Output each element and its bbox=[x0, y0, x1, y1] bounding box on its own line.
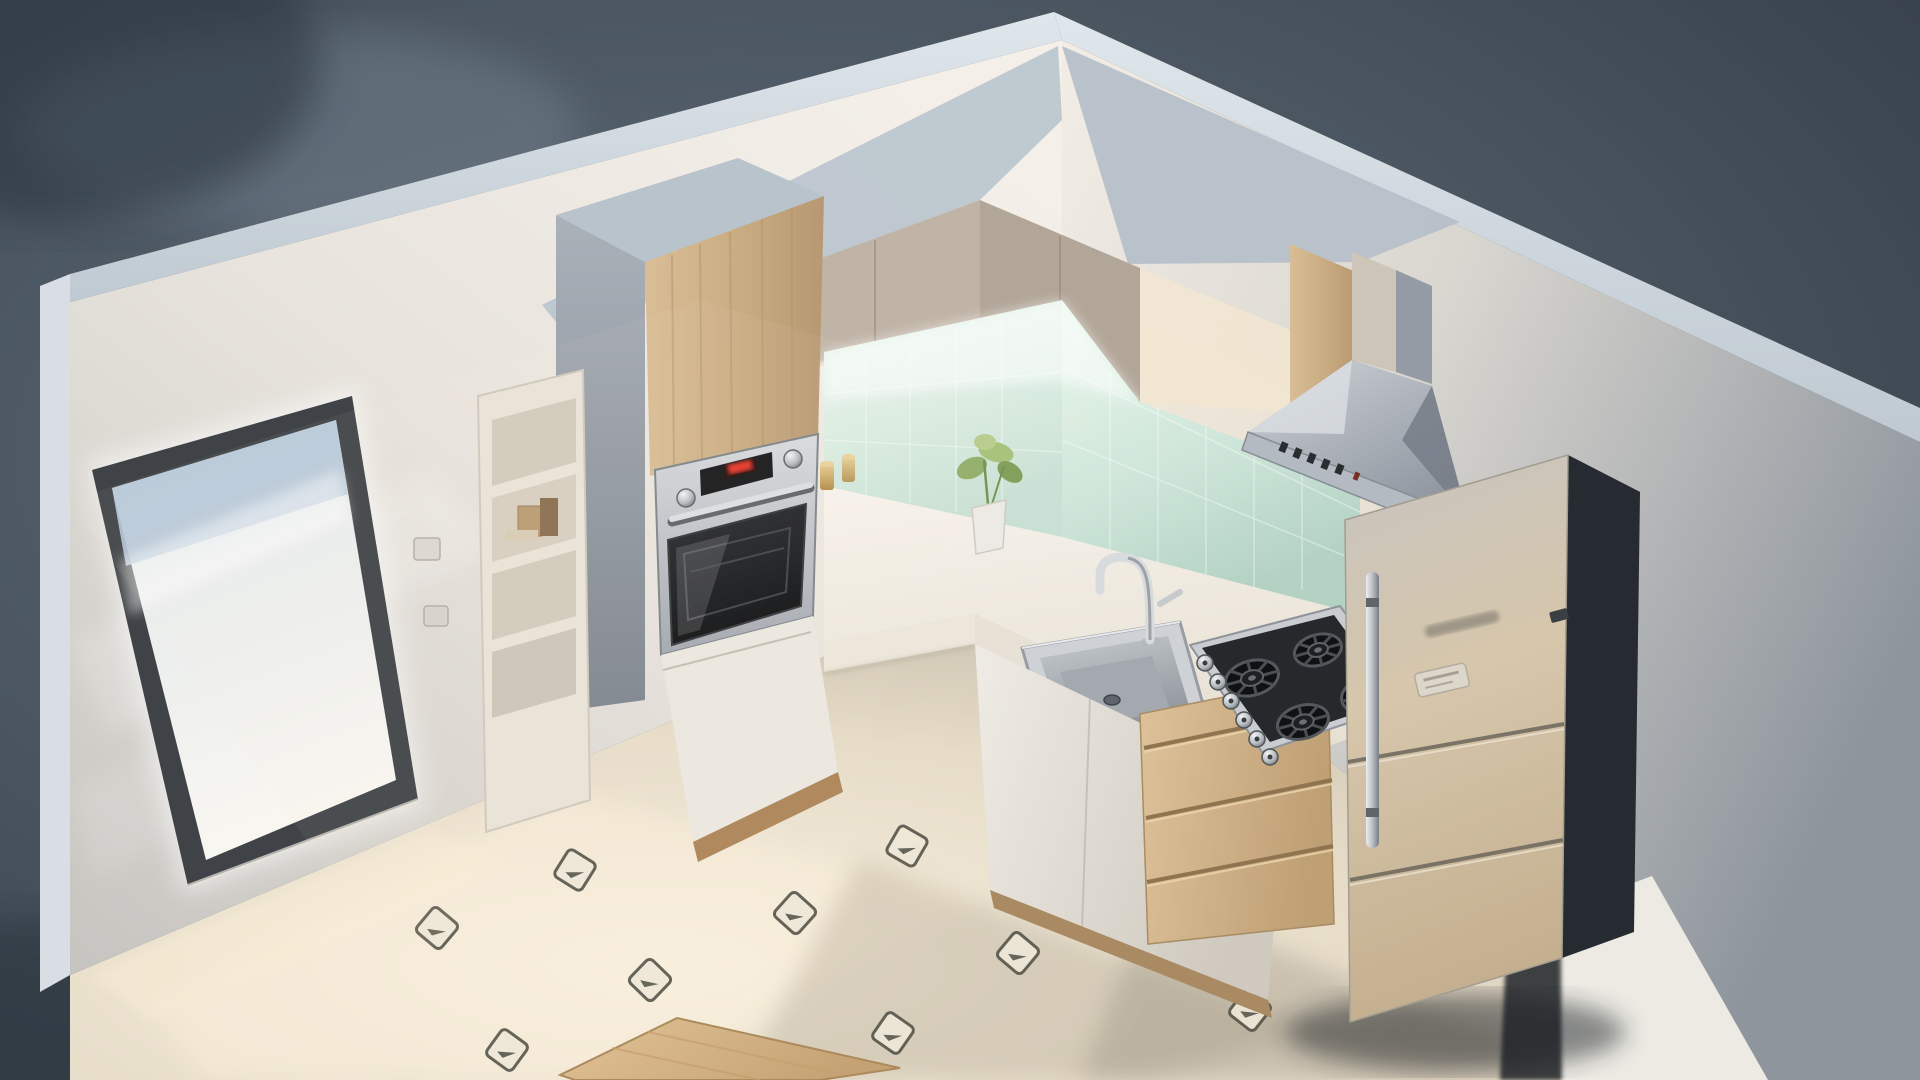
fridge-handle-mount-top bbox=[1366, 598, 1379, 607]
left-wall-endcap bbox=[40, 274, 70, 992]
cooktop-knob[interactable] bbox=[1223, 693, 1239, 709]
fridge-handle[interactable] bbox=[1366, 572, 1379, 848]
cooktop-knob[interactable] bbox=[1249, 731, 1265, 747]
fridge-handle-mount-bottom bbox=[1366, 808, 1379, 817]
fridge-floor-shadow bbox=[1285, 994, 1625, 1070]
scene-canvas bbox=[0, 0, 1920, 1080]
fridge-side bbox=[1562, 455, 1640, 958]
cooktop-knob[interactable] bbox=[1210, 674, 1226, 690]
cooktop-knob[interactable] bbox=[1262, 749, 1278, 765]
hood-duct-right bbox=[1396, 270, 1432, 384]
sink-drain bbox=[1104, 695, 1120, 705]
hood-duct-left bbox=[1352, 252, 1396, 372]
cooktop-knob[interactable] bbox=[1197, 655, 1213, 671]
cooktop-knob[interactable] bbox=[1236, 712, 1252, 728]
kitchen-render bbox=[0, 0, 1920, 1080]
